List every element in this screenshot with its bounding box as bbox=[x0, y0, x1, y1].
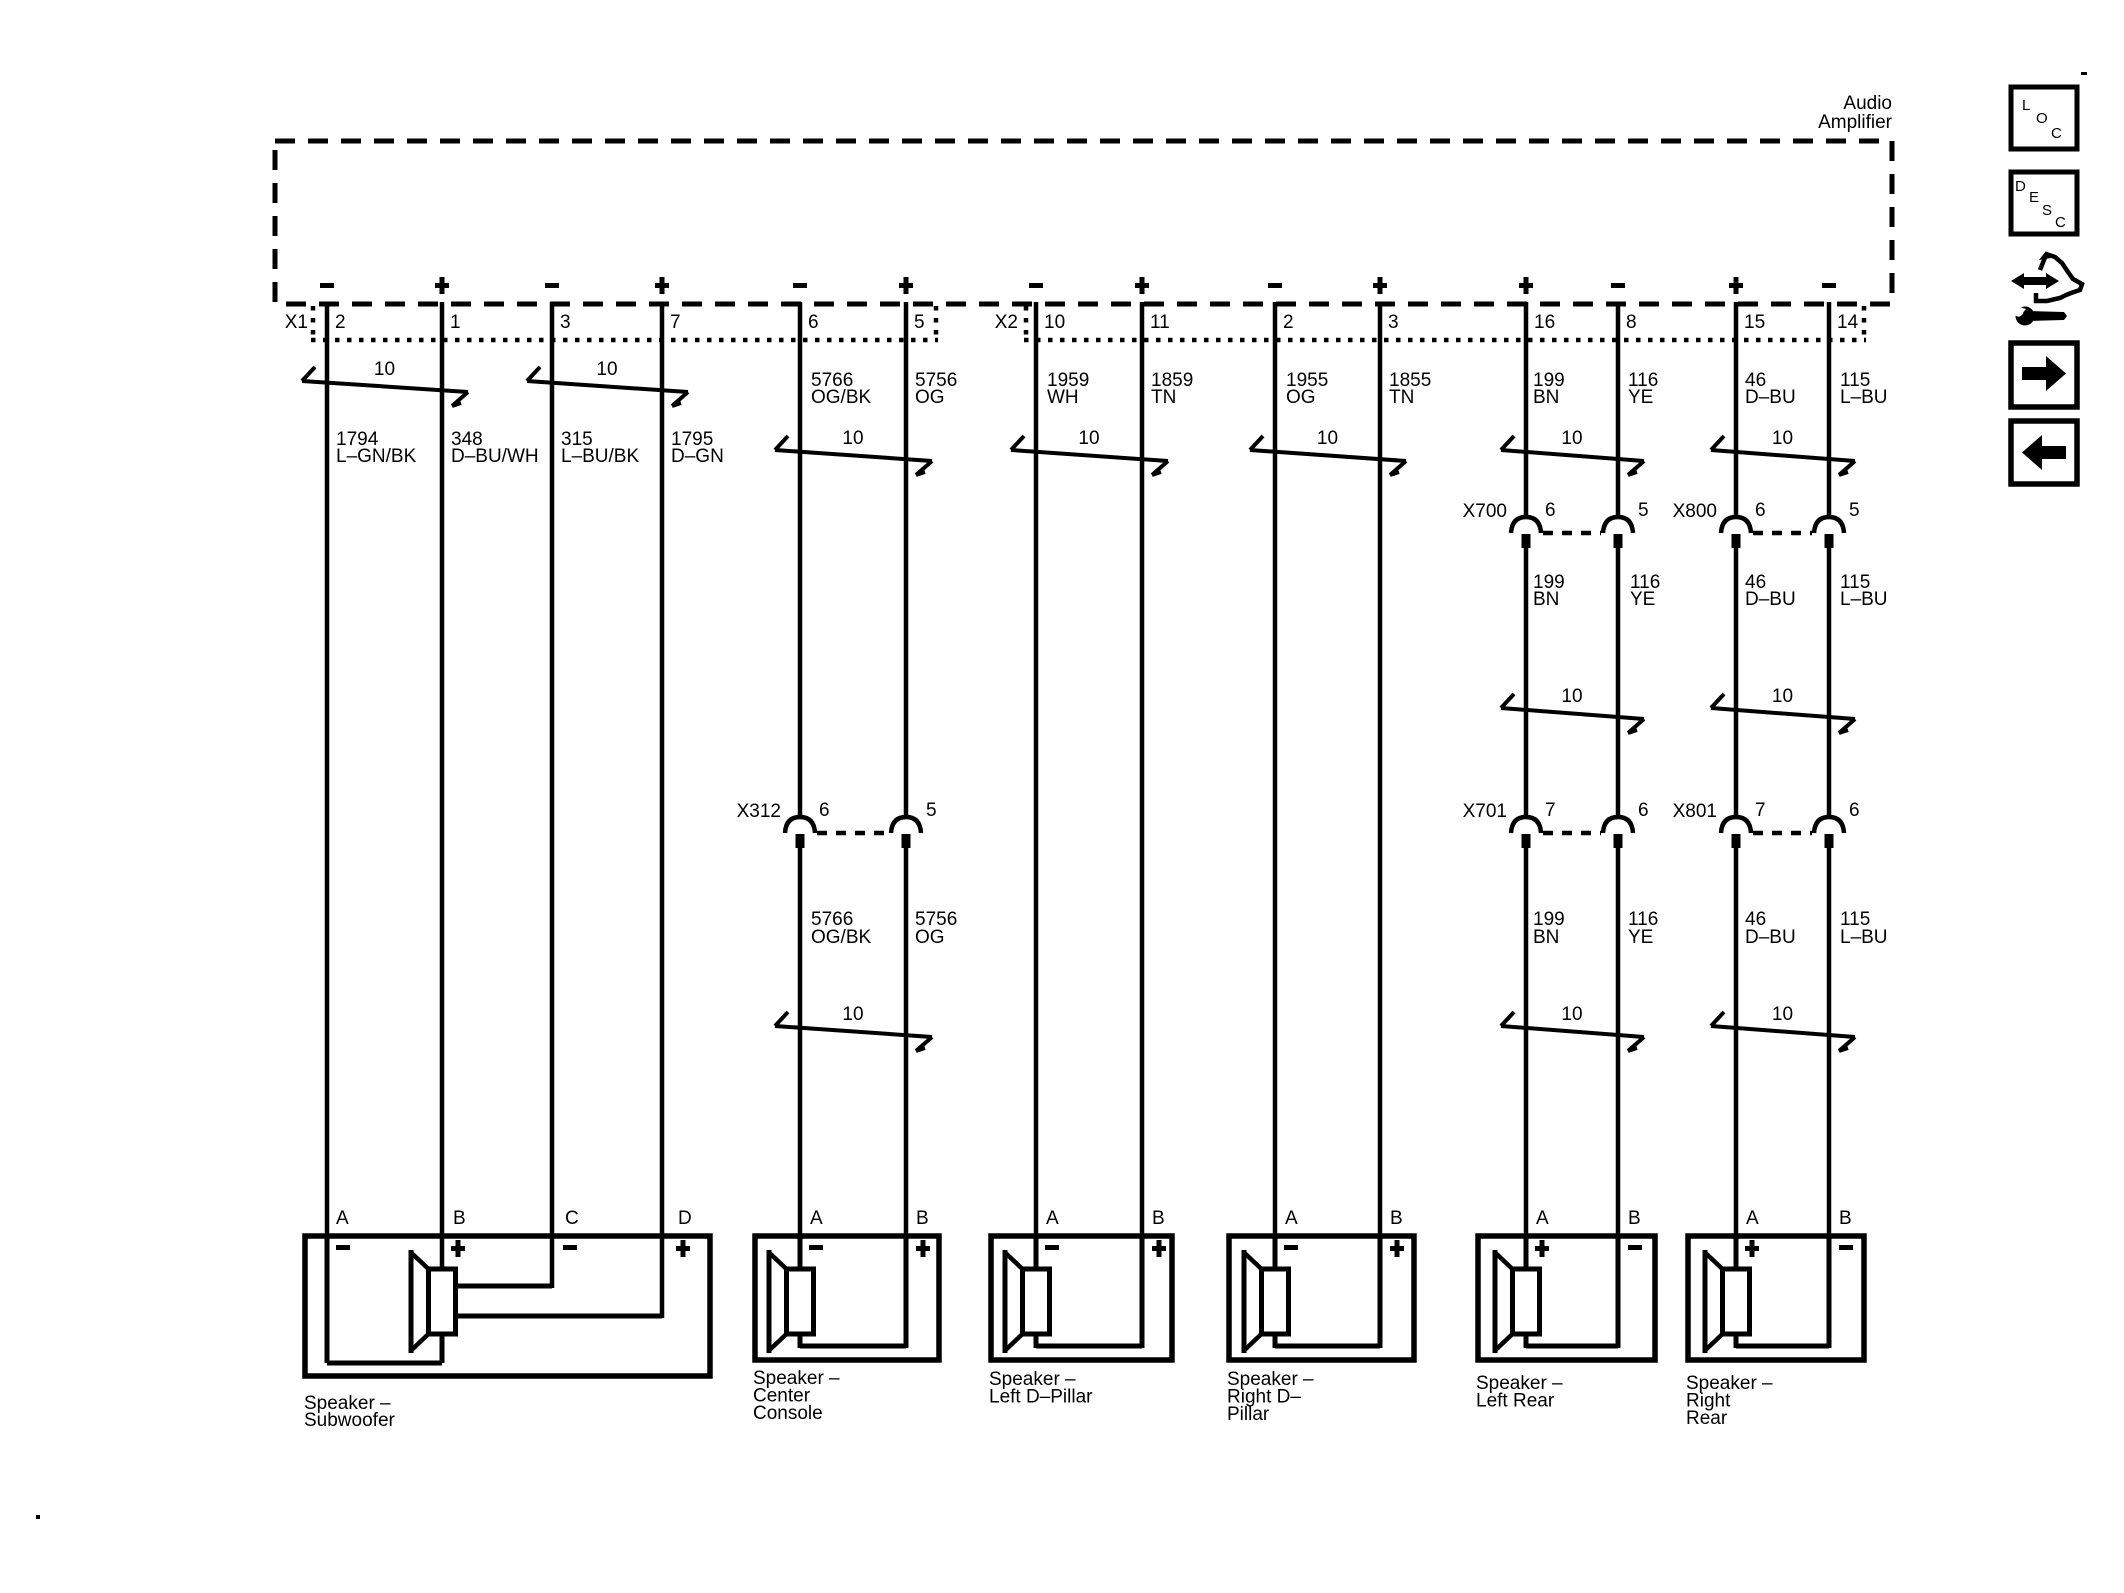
svg-text:L–GN/BK: L–GN/BK bbox=[336, 446, 417, 467]
svg-text:7: 7 bbox=[670, 312, 681, 333]
svg-text:OG/BK: OG/BK bbox=[811, 927, 872, 948]
svg-text:10: 10 bbox=[1561, 1004, 1582, 1025]
svg-text:BN: BN bbox=[1533, 927, 1559, 948]
svg-text:O: O bbox=[2036, 110, 2048, 127]
svg-text:5: 5 bbox=[914, 312, 925, 333]
svg-text:S: S bbox=[2042, 202, 2052, 219]
svg-text:X1: X1 bbox=[285, 312, 308, 333]
svg-text:B: B bbox=[453, 1208, 466, 1229]
svg-text:6: 6 bbox=[819, 800, 830, 821]
svg-text:5: 5 bbox=[926, 800, 937, 821]
svg-text:TN: TN bbox=[1389, 387, 1414, 408]
svg-text:OG: OG bbox=[1286, 387, 1316, 408]
svg-text:8: 8 bbox=[1626, 312, 1637, 333]
svg-text:10: 10 bbox=[596, 359, 617, 380]
svg-text:2: 2 bbox=[335, 312, 346, 333]
svg-text:OG/BK: OG/BK bbox=[811, 387, 872, 408]
svg-text:OG: OG bbox=[915, 387, 945, 408]
svg-text:B: B bbox=[1390, 1208, 1403, 1229]
svg-text:D–BU: D–BU bbox=[1745, 589, 1796, 610]
svg-text:BN: BN bbox=[1533, 387, 1559, 408]
svg-text:D–GN: D–GN bbox=[671, 446, 724, 467]
svg-text:10: 10 bbox=[1772, 428, 1793, 449]
svg-text:10: 10 bbox=[374, 359, 395, 380]
svg-text:L: L bbox=[2022, 97, 2030, 114]
svg-text:10: 10 bbox=[1772, 1004, 1793, 1025]
svg-text:Subwoofer: Subwoofer bbox=[304, 1410, 396, 1431]
svg-text:E: E bbox=[2029, 189, 2039, 206]
svg-text:C: C bbox=[565, 1208, 579, 1229]
svg-text:Audio: Audio bbox=[1843, 93, 1892, 114]
svg-text:7: 7 bbox=[1545, 800, 1556, 821]
svg-text:Left Rear: Left Rear bbox=[1476, 1391, 1555, 1412]
svg-text:3: 3 bbox=[1388, 312, 1399, 333]
svg-text:C: C bbox=[2051, 125, 2062, 142]
svg-text:Left D–Pillar: Left D–Pillar bbox=[989, 1387, 1093, 1408]
svg-text:TN: TN bbox=[1151, 387, 1176, 408]
svg-text:L–BU: L–BU bbox=[1840, 589, 1888, 610]
svg-text:X312: X312 bbox=[737, 801, 781, 822]
svg-text:A: A bbox=[336, 1208, 349, 1229]
svg-text:X801: X801 bbox=[1673, 801, 1717, 822]
svg-text:10: 10 bbox=[842, 428, 863, 449]
svg-text:X2: X2 bbox=[995, 312, 1018, 333]
svg-text:3: 3 bbox=[560, 312, 571, 333]
svg-text:6: 6 bbox=[1849, 800, 1860, 821]
svg-text:10: 10 bbox=[1078, 428, 1099, 449]
svg-text:10: 10 bbox=[1561, 428, 1582, 449]
svg-text:B: B bbox=[1152, 1208, 1165, 1229]
svg-text:OG: OG bbox=[915, 927, 945, 948]
svg-text:2: 2 bbox=[1283, 312, 1294, 333]
svg-text:6: 6 bbox=[1638, 800, 1649, 821]
svg-text:10: 10 bbox=[842, 1004, 863, 1025]
svg-text:B: B bbox=[1628, 1208, 1641, 1229]
svg-text:X700: X700 bbox=[1463, 501, 1507, 522]
svg-text:14: 14 bbox=[1837, 312, 1859, 333]
svg-text:16: 16 bbox=[1534, 312, 1555, 333]
svg-text:L–BU/BK: L–BU/BK bbox=[561, 446, 639, 467]
svg-text:15: 15 bbox=[1744, 312, 1765, 333]
svg-text:D–BU: D–BU bbox=[1745, 927, 1796, 948]
svg-text:10: 10 bbox=[1317, 428, 1338, 449]
svg-text:WH: WH bbox=[1047, 387, 1079, 408]
svg-text:11: 11 bbox=[1150, 312, 1170, 333]
svg-text:10: 10 bbox=[1561, 686, 1582, 707]
svg-text:C: C bbox=[2055, 214, 2066, 231]
svg-text:YE: YE bbox=[1628, 927, 1653, 948]
svg-text:X701: X701 bbox=[1463, 801, 1507, 822]
svg-text:B: B bbox=[916, 1208, 929, 1229]
svg-text:D–BU: D–BU bbox=[1745, 387, 1796, 408]
svg-text:A: A bbox=[1046, 1208, 1059, 1229]
svg-text:A: A bbox=[1536, 1208, 1549, 1229]
svg-text:5: 5 bbox=[1849, 500, 1860, 521]
svg-text:5: 5 bbox=[1638, 500, 1649, 521]
svg-text:6: 6 bbox=[1755, 500, 1766, 521]
svg-text:6: 6 bbox=[808, 312, 819, 333]
svg-text:Rear: Rear bbox=[1686, 1408, 1728, 1429]
svg-text:B: B bbox=[1839, 1208, 1852, 1229]
svg-text:YE: YE bbox=[1630, 589, 1655, 610]
svg-text:10: 10 bbox=[1044, 312, 1065, 333]
svg-text:L–BU: L–BU bbox=[1840, 387, 1888, 408]
svg-text:D: D bbox=[678, 1208, 692, 1229]
svg-text:7: 7 bbox=[1755, 800, 1766, 821]
svg-text:X800: X800 bbox=[1673, 501, 1717, 522]
svg-text:D: D bbox=[2015, 178, 2026, 195]
svg-text:D–BU/WH: D–BU/WH bbox=[451, 446, 539, 467]
svg-text:Console: Console bbox=[753, 1403, 823, 1424]
svg-text:A: A bbox=[1746, 1208, 1759, 1229]
svg-text:A: A bbox=[1285, 1208, 1298, 1229]
svg-text:Pillar: Pillar bbox=[1227, 1404, 1270, 1425]
svg-text:10: 10 bbox=[1772, 686, 1793, 707]
svg-text:A: A bbox=[810, 1208, 823, 1229]
svg-text:6: 6 bbox=[1545, 500, 1556, 521]
svg-text:YE: YE bbox=[1628, 387, 1653, 408]
svg-text:Amplifier: Amplifier bbox=[1818, 112, 1893, 133]
svg-text:1: 1 bbox=[450, 312, 461, 333]
svg-text:BN: BN bbox=[1533, 589, 1559, 610]
svg-text:L–BU: L–BU bbox=[1840, 927, 1888, 948]
